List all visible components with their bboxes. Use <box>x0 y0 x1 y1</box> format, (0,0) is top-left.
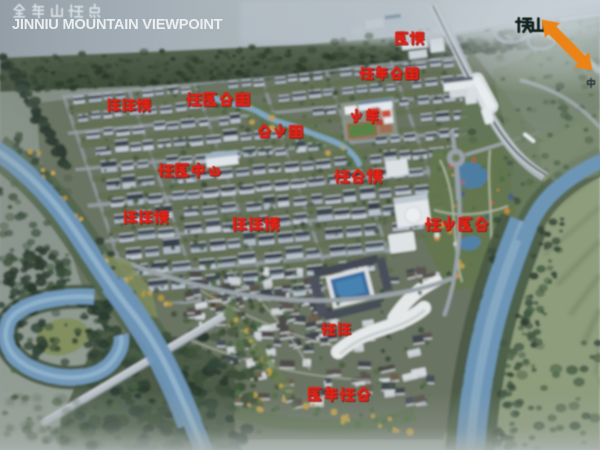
svg-text:JINNIU MOUNTAIN VIEWPOINT: JINNIU MOUNTAIN VIEWPOINT <box>12 17 223 33</box>
